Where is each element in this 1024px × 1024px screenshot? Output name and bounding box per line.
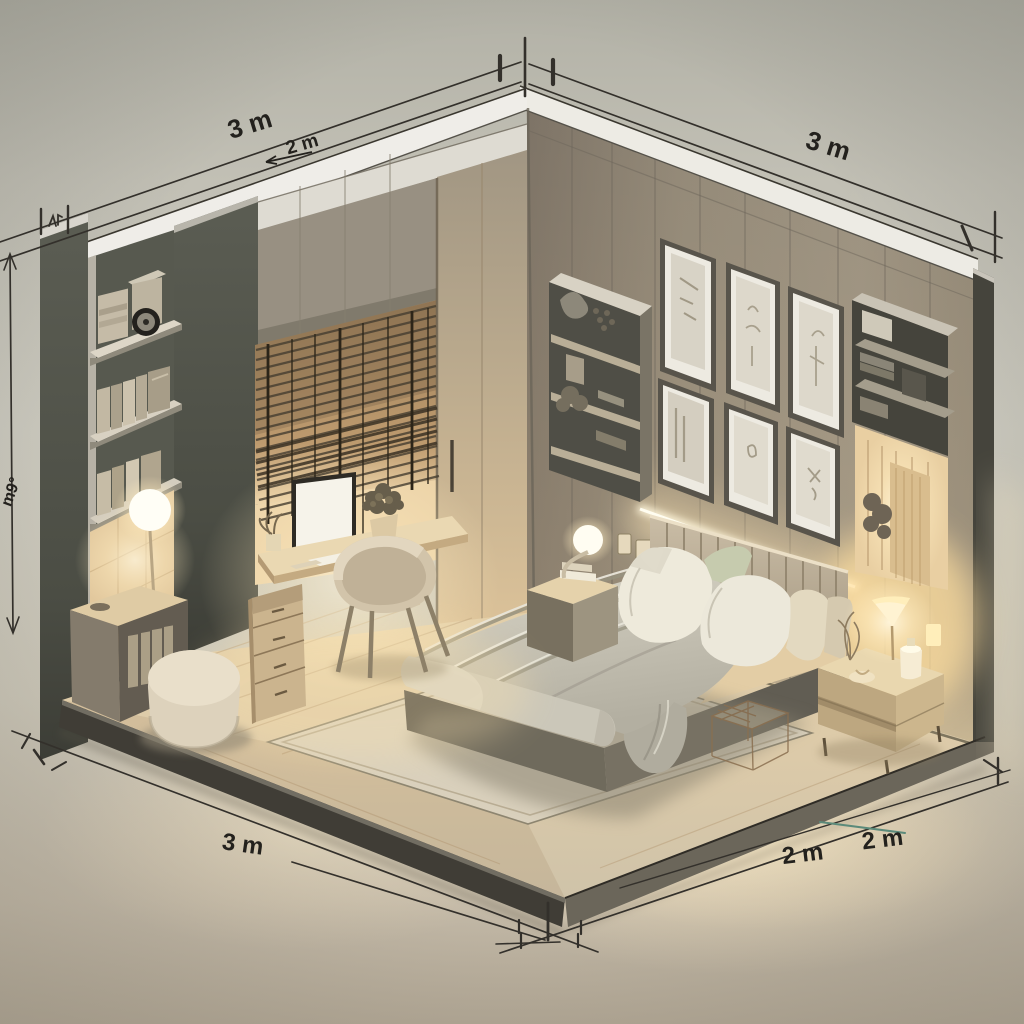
svg-text:3 m: 3 m <box>220 828 265 860</box>
svg-text:2 m: 2 m <box>860 824 904 856</box>
svg-text:2 m: 2 m <box>780 838 824 870</box>
